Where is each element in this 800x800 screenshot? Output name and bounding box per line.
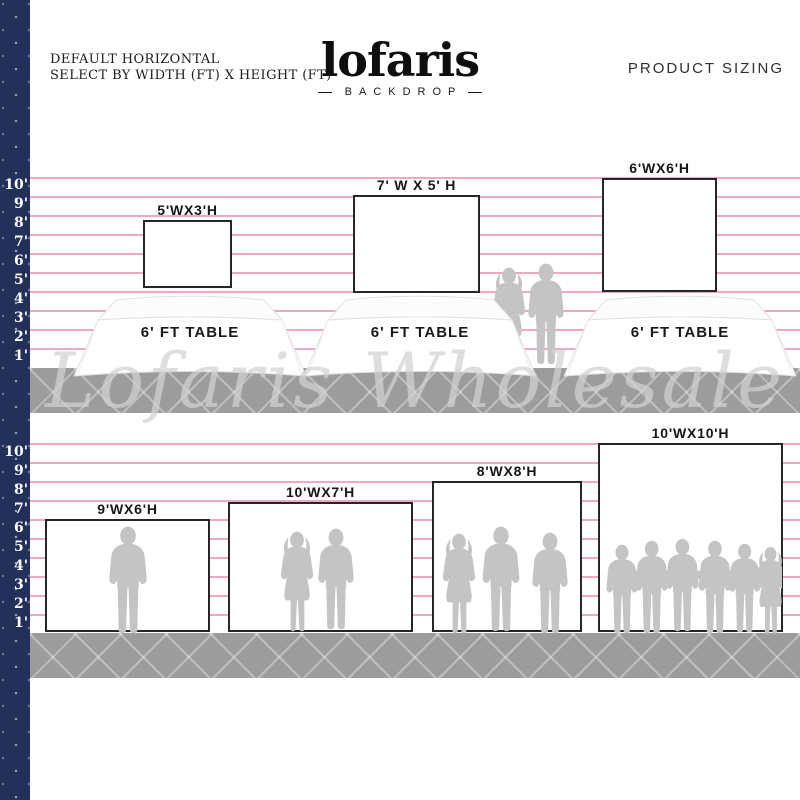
scale-number: 3' xyxy=(0,576,28,594)
scale-number: 9' xyxy=(0,462,28,480)
group-of-six-silhouette xyxy=(600,526,782,646)
backdrop-7x5 xyxy=(353,195,480,293)
couple-silhouette xyxy=(275,522,367,638)
scale-number: 4' xyxy=(0,557,28,575)
group-of-three-silhouette xyxy=(437,522,577,640)
backdrop-9x6 xyxy=(45,519,210,632)
table-label: 6' FT TABLE xyxy=(70,324,310,341)
backdrop-size-label: 10'WX7'H xyxy=(228,484,413,500)
brand-name: lofaris xyxy=(295,36,505,84)
backdrop-size-label: 5'WX3'H xyxy=(133,202,242,218)
backdrop-8x8 xyxy=(432,481,582,632)
table-label: 6' FT TABLE xyxy=(560,324,800,341)
tagline-dash-right xyxy=(468,92,482,93)
measuring-strip xyxy=(0,0,30,800)
scale-number: 1' xyxy=(0,347,28,365)
scale-number: 8' xyxy=(0,481,28,499)
product-sizing-infographic: DEFAULT HORIZONTAL SELECT BY WIDTH (FT) … xyxy=(0,0,800,800)
backdrop-size-label: 8'WX8'H xyxy=(432,463,582,479)
scale-number: 6' xyxy=(0,519,28,537)
tagline-text: BACKDROP xyxy=(338,86,463,98)
backdrop-size-label: 10'WX10'H xyxy=(598,425,783,441)
backdrop-size-label: 7' W X 5' H xyxy=(343,177,490,193)
backdrop-10x10 xyxy=(598,443,783,632)
scale-number: 2' xyxy=(0,595,28,613)
scale-number: 6' xyxy=(0,252,28,270)
header-subtitle: DEFAULT HORIZONTAL SELECT BY WIDTH (FT) … xyxy=(50,52,332,84)
scale-number: 1' xyxy=(0,614,28,632)
scale-number: 8' xyxy=(0,214,28,232)
tagline-dash-left xyxy=(318,92,332,93)
person-silhouette xyxy=(101,526,155,638)
scale-number: 2' xyxy=(0,328,28,346)
backdrop-5x3 xyxy=(143,220,232,288)
scale-number: 5' xyxy=(0,271,28,289)
scale-number: 10' xyxy=(0,443,28,461)
product-sizing-label: PRODUCT SIZING xyxy=(628,60,784,77)
backdrop-6x6 xyxy=(602,178,717,292)
header-line-2: SELECT BY WIDTH (FT) X HEIGHT (FT) xyxy=(50,68,332,84)
header-line-1: DEFAULT HORIZONTAL xyxy=(50,52,332,68)
brand-tagline: BACKDROP xyxy=(295,86,505,98)
scale-number: 3' xyxy=(0,309,28,327)
brand-logo: lofaris BACKDROP xyxy=(295,36,505,98)
scale-number: 10' xyxy=(0,176,28,194)
backdrop-size-label: 6'WX6'H xyxy=(592,160,727,176)
backdrop-size-label: 9'WX6'H xyxy=(45,501,210,517)
scale-number: 7' xyxy=(0,500,28,518)
scale-number: 4' xyxy=(0,290,28,308)
scale-number: 7' xyxy=(0,233,28,251)
scale-number: 9' xyxy=(0,195,28,213)
backdrop-10x7 xyxy=(228,502,413,632)
table-label: 6' FT TABLE xyxy=(300,324,540,341)
scale-number: 5' xyxy=(0,538,28,556)
